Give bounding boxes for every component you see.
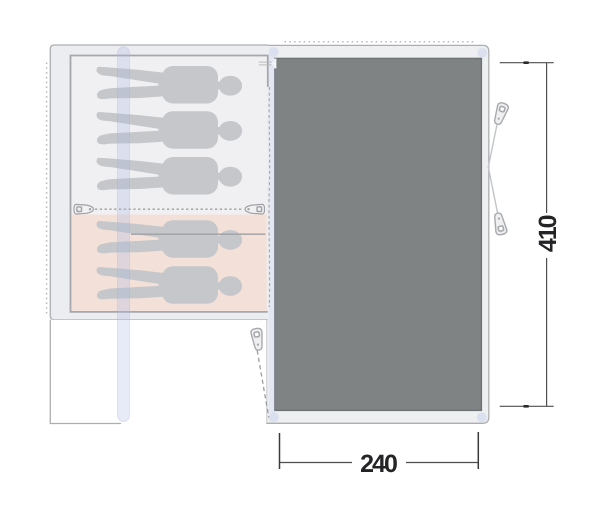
svg-text:410: 410 xyxy=(534,215,562,252)
svg-text:240: 240 xyxy=(360,450,397,478)
